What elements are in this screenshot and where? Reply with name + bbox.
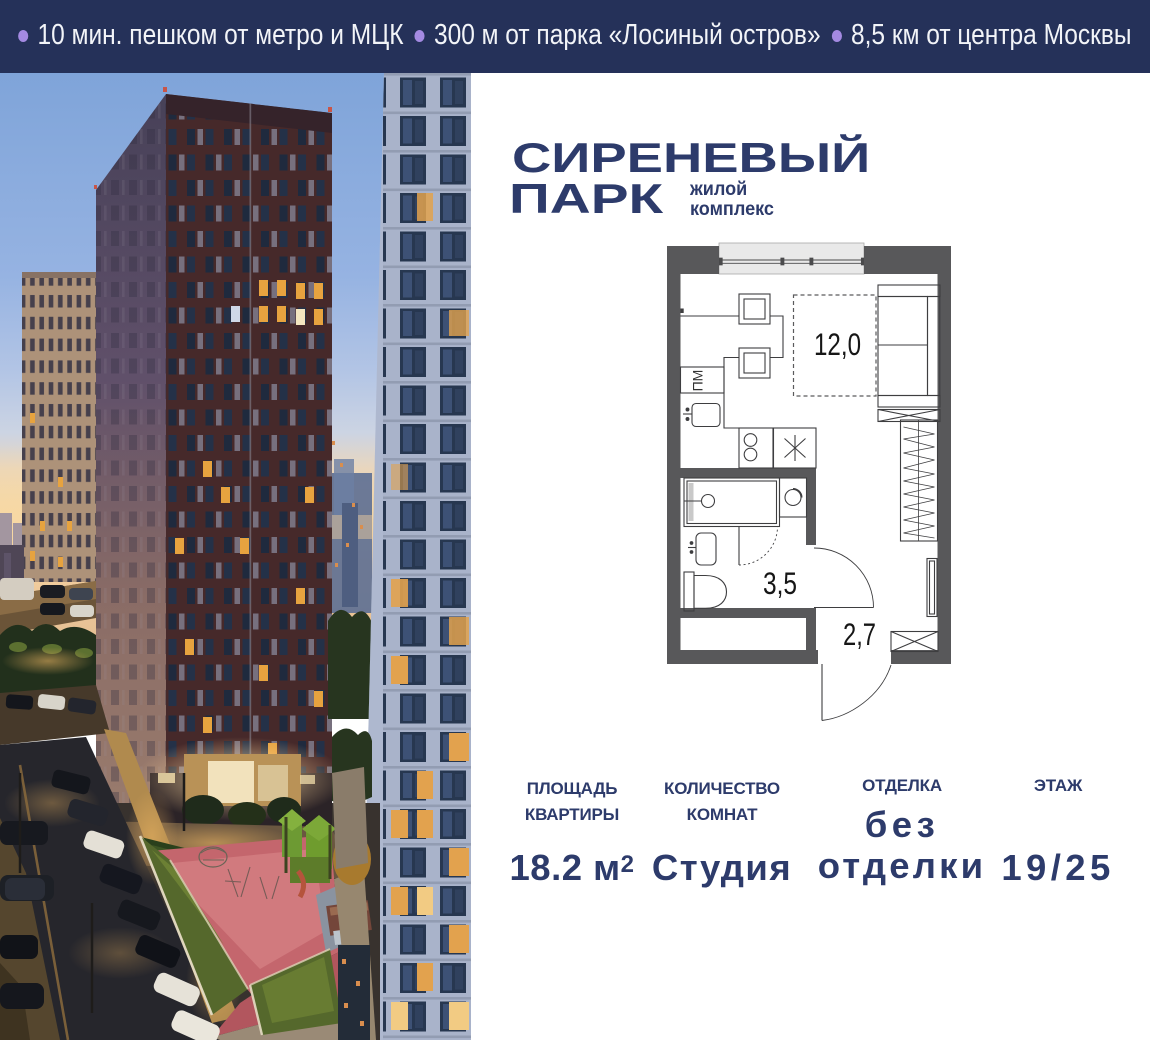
svg-text:12,0: 12,0 — [814, 326, 861, 362]
svg-text:2,7: 2,7 — [843, 616, 876, 652]
svg-text:3,5: 3,5 — [763, 565, 797, 601]
svg-text:ПМ: ПМ — [690, 370, 706, 392]
